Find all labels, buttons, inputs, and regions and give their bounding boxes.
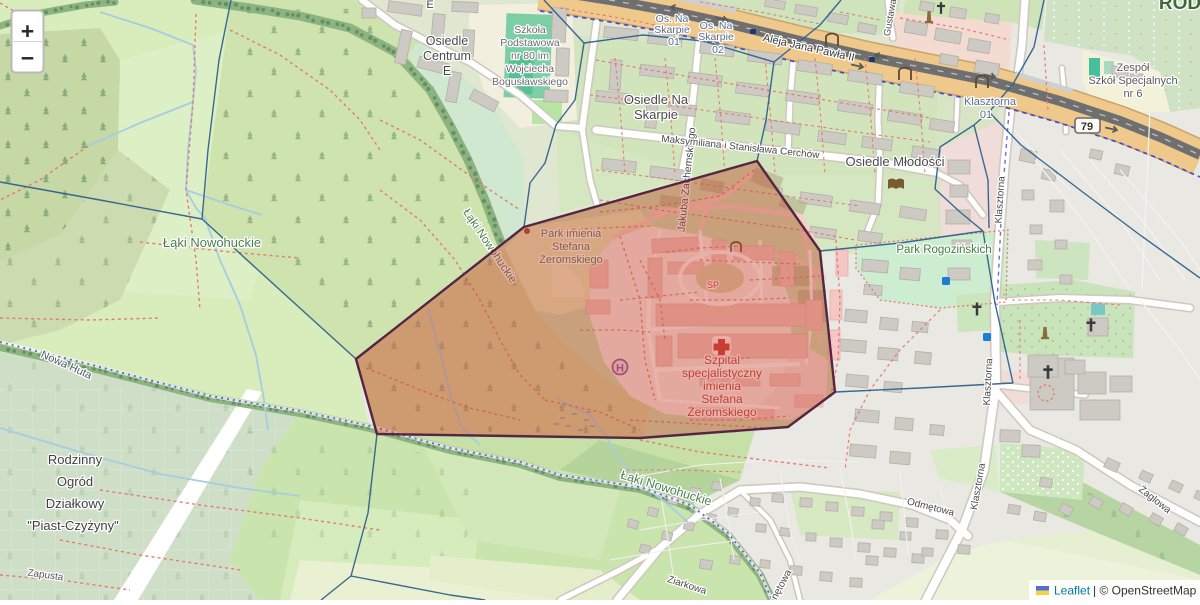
svg-text:E: E bbox=[426, 0, 433, 11]
svg-text:Działkowy: Działkowy bbox=[46, 496, 105, 511]
svg-text:Wojciecha: Wojciecha bbox=[506, 63, 554, 75]
svg-text:Szkół Specjalnych: Szkół Specjalnych bbox=[1088, 75, 1177, 87]
svg-text:01: 01 bbox=[980, 109, 992, 121]
svg-text:Ogród: Ogród bbox=[57, 474, 93, 489]
svg-text:Szkoła: Szkoła bbox=[514, 24, 546, 36]
svg-text:01: 01 bbox=[668, 36, 680, 48]
svg-text:−: − bbox=[21, 45, 34, 71]
svg-text:ROD: ROD bbox=[1159, 0, 1200, 14]
svg-text:Osiedle: Osiedle bbox=[426, 34, 468, 48]
svg-text:Centrum: Centrum bbox=[423, 49, 471, 63]
svg-text:Zespół: Zespół bbox=[1116, 62, 1150, 74]
svg-text:"Piast-Czyżyny": "Piast-Czyżyny" bbox=[27, 518, 119, 533]
svg-text:Łąki Nowohuckie: Łąki Nowohuckie bbox=[163, 235, 261, 250]
svg-text:02: 02 bbox=[712, 44, 724, 56]
svg-text:+: + bbox=[21, 18, 34, 44]
svg-text:79: 79 bbox=[1081, 121, 1093, 133]
svg-text:E: E bbox=[443, 64, 451, 78]
svg-text:| © OpenStreetMap: | © OpenStreetMap bbox=[1093, 584, 1197, 598]
svg-text:Klasztorna: Klasztorna bbox=[964, 96, 1017, 108]
svg-text:nr 80 im: nr 80 im bbox=[511, 50, 549, 62]
svg-text:Skarpie: Skarpie bbox=[634, 107, 678, 122]
svg-text:Osiedle Na: Osiedle Na bbox=[624, 92, 689, 107]
svg-text:Skarpie: Skarpie bbox=[654, 24, 690, 36]
svg-text:nr 6: nr 6 bbox=[1124, 88, 1143, 100]
svg-text:Park Rogozińskich: Park Rogozińskich bbox=[896, 244, 991, 256]
svg-text:Leaflet: Leaflet bbox=[1054, 584, 1091, 598]
svg-text:Podstawowa: Podstawowa bbox=[500, 37, 560, 49]
svg-text:Rodzinny: Rodzinny bbox=[48, 452, 103, 467]
svg-text:Osiedle Młodości: Osiedle Młodości bbox=[846, 154, 945, 169]
svg-text:Bogusławskiego: Bogusławskiego bbox=[492, 76, 568, 88]
svg-text:Skarpie: Skarpie bbox=[698, 31, 734, 43]
